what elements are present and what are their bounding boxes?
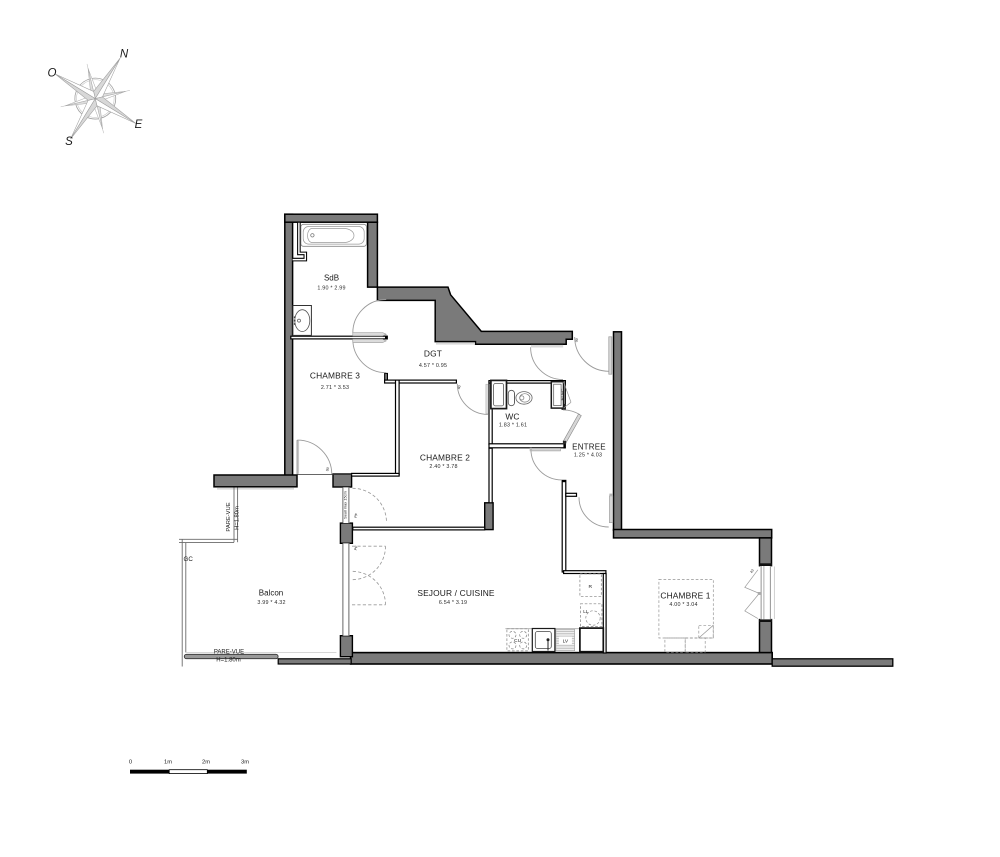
svg-text:Seuil max 15cm: Seuil max 15cm — [342, 491, 347, 519]
svg-text:H=1.80m: H=1.80m — [216, 658, 241, 664]
svg-text:CU: CU — [514, 638, 522, 644]
svg-text:E: E — [135, 119, 143, 131]
svg-text:1.83 * 1.61: 1.83 * 1.61 — [499, 423, 527, 429]
svg-text:PARE-VUE: PARE-VUE — [214, 649, 244, 655]
svg-text:1.25 * 4.03: 1.25 * 4.03 — [574, 452, 602, 458]
svg-text:3.99 * 4.32: 3.99 * 4.32 — [257, 600, 285, 606]
svg-text:1.90 * 2.99: 1.90 * 2.99 — [317, 286, 345, 292]
svg-text:SEJOUR / CUISINE: SEJOUR / CUISINE — [417, 588, 495, 598]
svg-text:2m: 2m — [202, 760, 210, 766]
svg-text:GC: GC — [184, 556, 194, 563]
svg-text:1m: 1m — [164, 760, 172, 766]
svg-text:0: 0 — [129, 760, 132, 766]
svg-text:DGT: DGT — [424, 349, 442, 359]
svg-text:S: S — [65, 136, 73, 148]
svg-text:CHAMBRE 2: CHAMBRE 2 — [420, 453, 470, 463]
svg-text:LV: LV — [563, 639, 569, 645]
svg-text:2.40 * 3.78: 2.40 * 3.78 — [429, 464, 457, 470]
svg-text:4.57 * 0.95: 4.57 * 0.95 — [419, 363, 447, 369]
svg-text:4.00 * 3.04: 4.00 * 3.04 — [669, 602, 697, 608]
svg-text:ELEC: ELEC — [560, 388, 565, 401]
svg-text:CHAMBRE 3: CHAMBRE 3 — [310, 371, 360, 381]
svg-text:3m: 3m — [241, 760, 249, 766]
svg-text:2.71 * 3.53: 2.71 * 3.53 — [321, 385, 349, 391]
svg-text:N: N — [120, 49, 129, 61]
svg-text:PARE-VUE: PARE-VUE — [226, 502, 232, 531]
svg-text:O: O — [48, 68, 57, 80]
svg-text:SdB: SdB — [324, 274, 339, 283]
svg-text:ENTREE: ENTREE — [572, 442, 606, 451]
svg-text:LL: LL — [583, 609, 589, 614]
svg-text:6.54 * 3.19: 6.54 * 3.19 — [439, 600, 467, 606]
svg-text:WC: WC — [505, 412, 519, 422]
svg-text:Balcon: Balcon — [259, 589, 283, 598]
svg-text:R: R — [589, 584, 593, 590]
svg-text:H=1.80m: H=1.80m — [235, 506, 241, 530]
svg-text:CHAMBRE 1: CHAMBRE 1 — [660, 591, 710, 601]
